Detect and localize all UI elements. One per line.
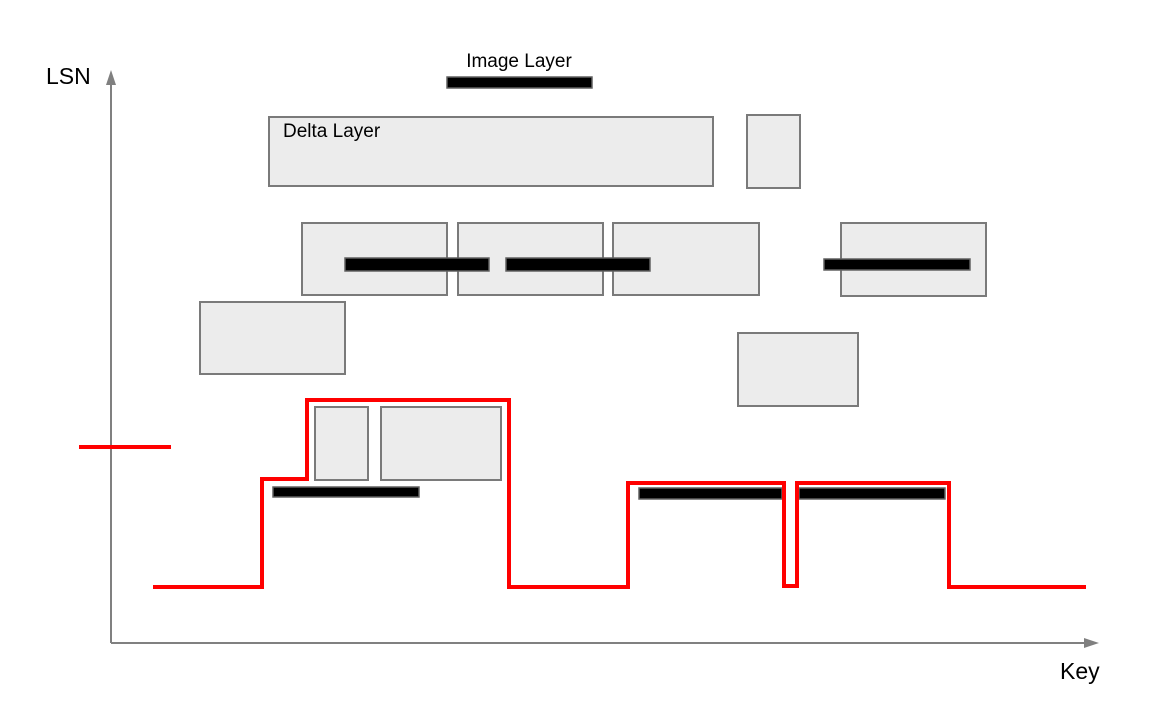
layer-map-svg xyxy=(0,0,1175,704)
delta-layer-rect-top-small xyxy=(747,115,800,188)
y-axis-label: LSN xyxy=(46,64,91,89)
x-axis-arrowhead-icon xyxy=(1084,638,1099,648)
image-layer-bar-row2-mid xyxy=(506,258,650,271)
image-layer-label: Image Layer xyxy=(446,52,592,73)
image-layer-bar-row2-left xyxy=(345,258,489,271)
image-layer-bar-bottom-right xyxy=(799,488,945,499)
delta-layer-rect-row3-left xyxy=(200,302,345,374)
delta-layer-rect-step-small xyxy=(315,407,368,480)
image-layer-bar-bottom-mid xyxy=(639,488,782,499)
image-layer-bar-bottom-left xyxy=(273,487,419,497)
layer-map-diagram: LSN Key Image Layer Delta Layer xyxy=(0,0,1175,704)
y-axis-arrowhead-icon xyxy=(106,70,116,85)
delta-layer-rect-row3-right xyxy=(738,333,858,406)
x-axis-label: Key xyxy=(1060,659,1100,684)
image-layer-bar-legend xyxy=(447,77,592,88)
image-layer-bar-row2-right xyxy=(824,259,970,270)
delta-layer-rect-step-wide xyxy=(381,407,501,480)
delta-layer-label: Delta Layer xyxy=(283,122,380,143)
